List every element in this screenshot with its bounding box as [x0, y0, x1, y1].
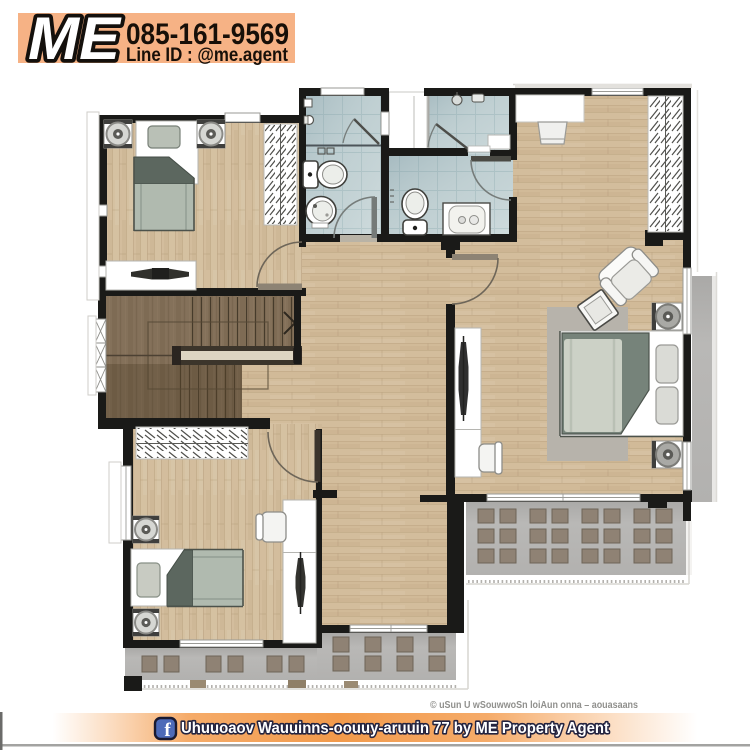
svg-text:ME: ME [28, 5, 122, 72]
svg-text:Uhuuoaov Wauuinns-oouuy-aruuin: Uhuuoaov Wauuinns-oouuy-aruuin 77 by ME … [181, 720, 610, 737]
svg-text:© uSun U wSouwwoSn loiAun onna: © uSun U wSouwwoSn loiAun onna – aouasaa… [430, 700, 638, 711]
svg-text:f: f [164, 720, 171, 741]
svg-text:Line ID : @me.agent: Line ID : @me.agent [126, 45, 289, 66]
